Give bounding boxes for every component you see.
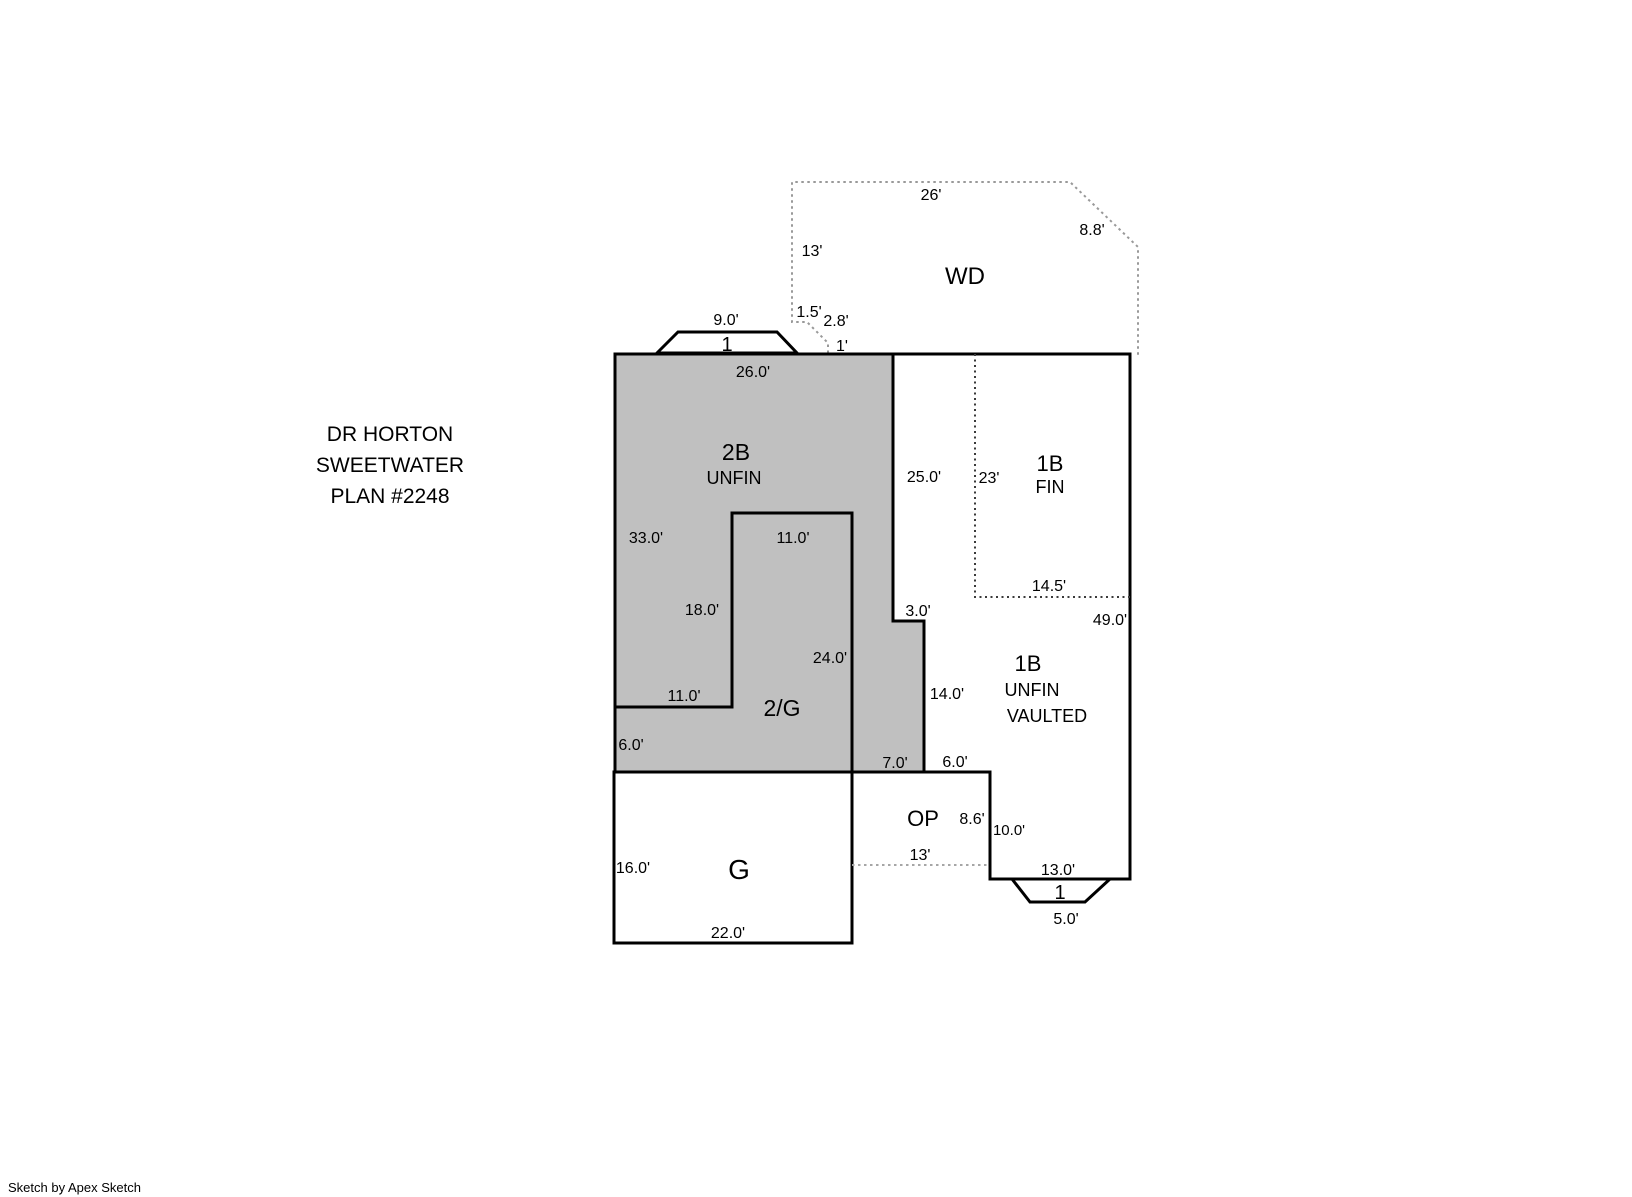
room-label-2b-finish: UNFIN [707, 468, 762, 488]
dim-wd-top: 26' [921, 187, 942, 204]
room-label-1b-fin: 1B [1037, 451, 1064, 476]
dim-2b-notch-top: 11.0' [776, 530, 809, 547]
bay-bottom-count: 1 [1054, 882, 1065, 904]
dim-bay-top-width: 9.0' [713, 312, 738, 329]
dim-2b-top: 26.0' [736, 364, 770, 381]
room-label-garage: G [728, 854, 750, 885]
sketch-credit: Sketch by Apex Sketch [8, 1180, 141, 1195]
dim-2b-step: 3.0' [905, 603, 930, 620]
dim-1b-fin-bottom: 14.5' [1032, 578, 1066, 595]
room-label-1b-unfin: 1B [1015, 651, 1042, 676]
dim-1b-right: 49.0' [1093, 612, 1127, 629]
dim-wd-left: 13' [802, 243, 823, 260]
room-label-wd: WD [945, 263, 985, 290]
room-label-1b-unfin-style: VAULTED [1007, 706, 1087, 726]
dim-2b-notch-left: 18.0' [685, 602, 719, 619]
dim-2b-left-upper: 33.0' [629, 530, 663, 547]
dim-1b-bottom: 13.0' [1041, 862, 1075, 879]
room-label-2g: 2/G [763, 695, 800, 721]
plan-title-line2: SWEETWATER [316, 454, 464, 477]
dim-garage-left: 16.0' [616, 860, 650, 877]
dim-wd-jog-vertical: 1' [836, 338, 848, 355]
dim-op-top-right: 6.0' [942, 754, 967, 771]
dim-2b-notch-bottom: 11.0' [667, 688, 700, 705]
dim-wd-jog-horizontal: 1.5' [796, 304, 821, 321]
dim-op-bottom: 13' [910, 847, 931, 864]
dim-garage-bottom: 22.0' [711, 925, 745, 942]
room-label-op: OP [907, 806, 939, 831]
dim-2b-right: 25.0' [907, 469, 941, 486]
dim-op-top-left: 7.0' [882, 755, 907, 772]
room-label-1b-unfin-finish: UNFIN [1005, 680, 1060, 700]
room-label-1b-fin-finish: FIN [1036, 477, 1065, 497]
dim-wd-jog-diagonal: 2.8' [823, 313, 848, 330]
dim-op-outer-right: 10.0' [993, 822, 1025, 839]
dim-wd-diagonal: 8.8' [1079, 222, 1104, 239]
dim-2b-notch-right: 24.0' [813, 650, 847, 667]
dim-2b-step-side: 14.0' [930, 686, 964, 703]
dim-1b-fin-side: 23' [979, 470, 1000, 487]
floor-plan-page: DR HORTON SWEETWATER PLAN #2248 WD 26' 1… [0, 0, 1632, 1197]
plan-title-line1: DR HORTON [327, 423, 453, 446]
dim-bay-bottom-width: 5.0' [1053, 911, 1078, 928]
plan-title-line3: PLAN #2248 [330, 485, 449, 508]
bay-top-count: 1 [721, 334, 732, 356]
room-label-2b: 2B [722, 439, 750, 465]
floor-plan-sketch: DR HORTON SWEETWATER PLAN #2248 WD 26' 1… [0, 0, 1632, 1197]
dim-op-inner-right: 8.6' [959, 811, 984, 828]
dim-2b-left-lower: 6.0' [618, 737, 643, 754]
